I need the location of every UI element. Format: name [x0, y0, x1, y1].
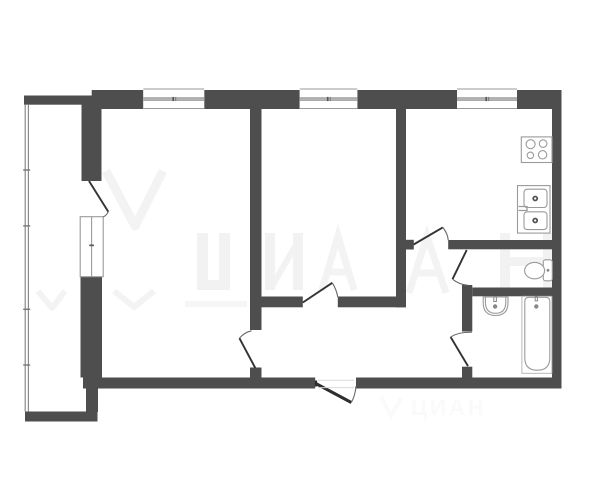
svg-text:ЦИАН: ЦИАН — [411, 395, 487, 420]
